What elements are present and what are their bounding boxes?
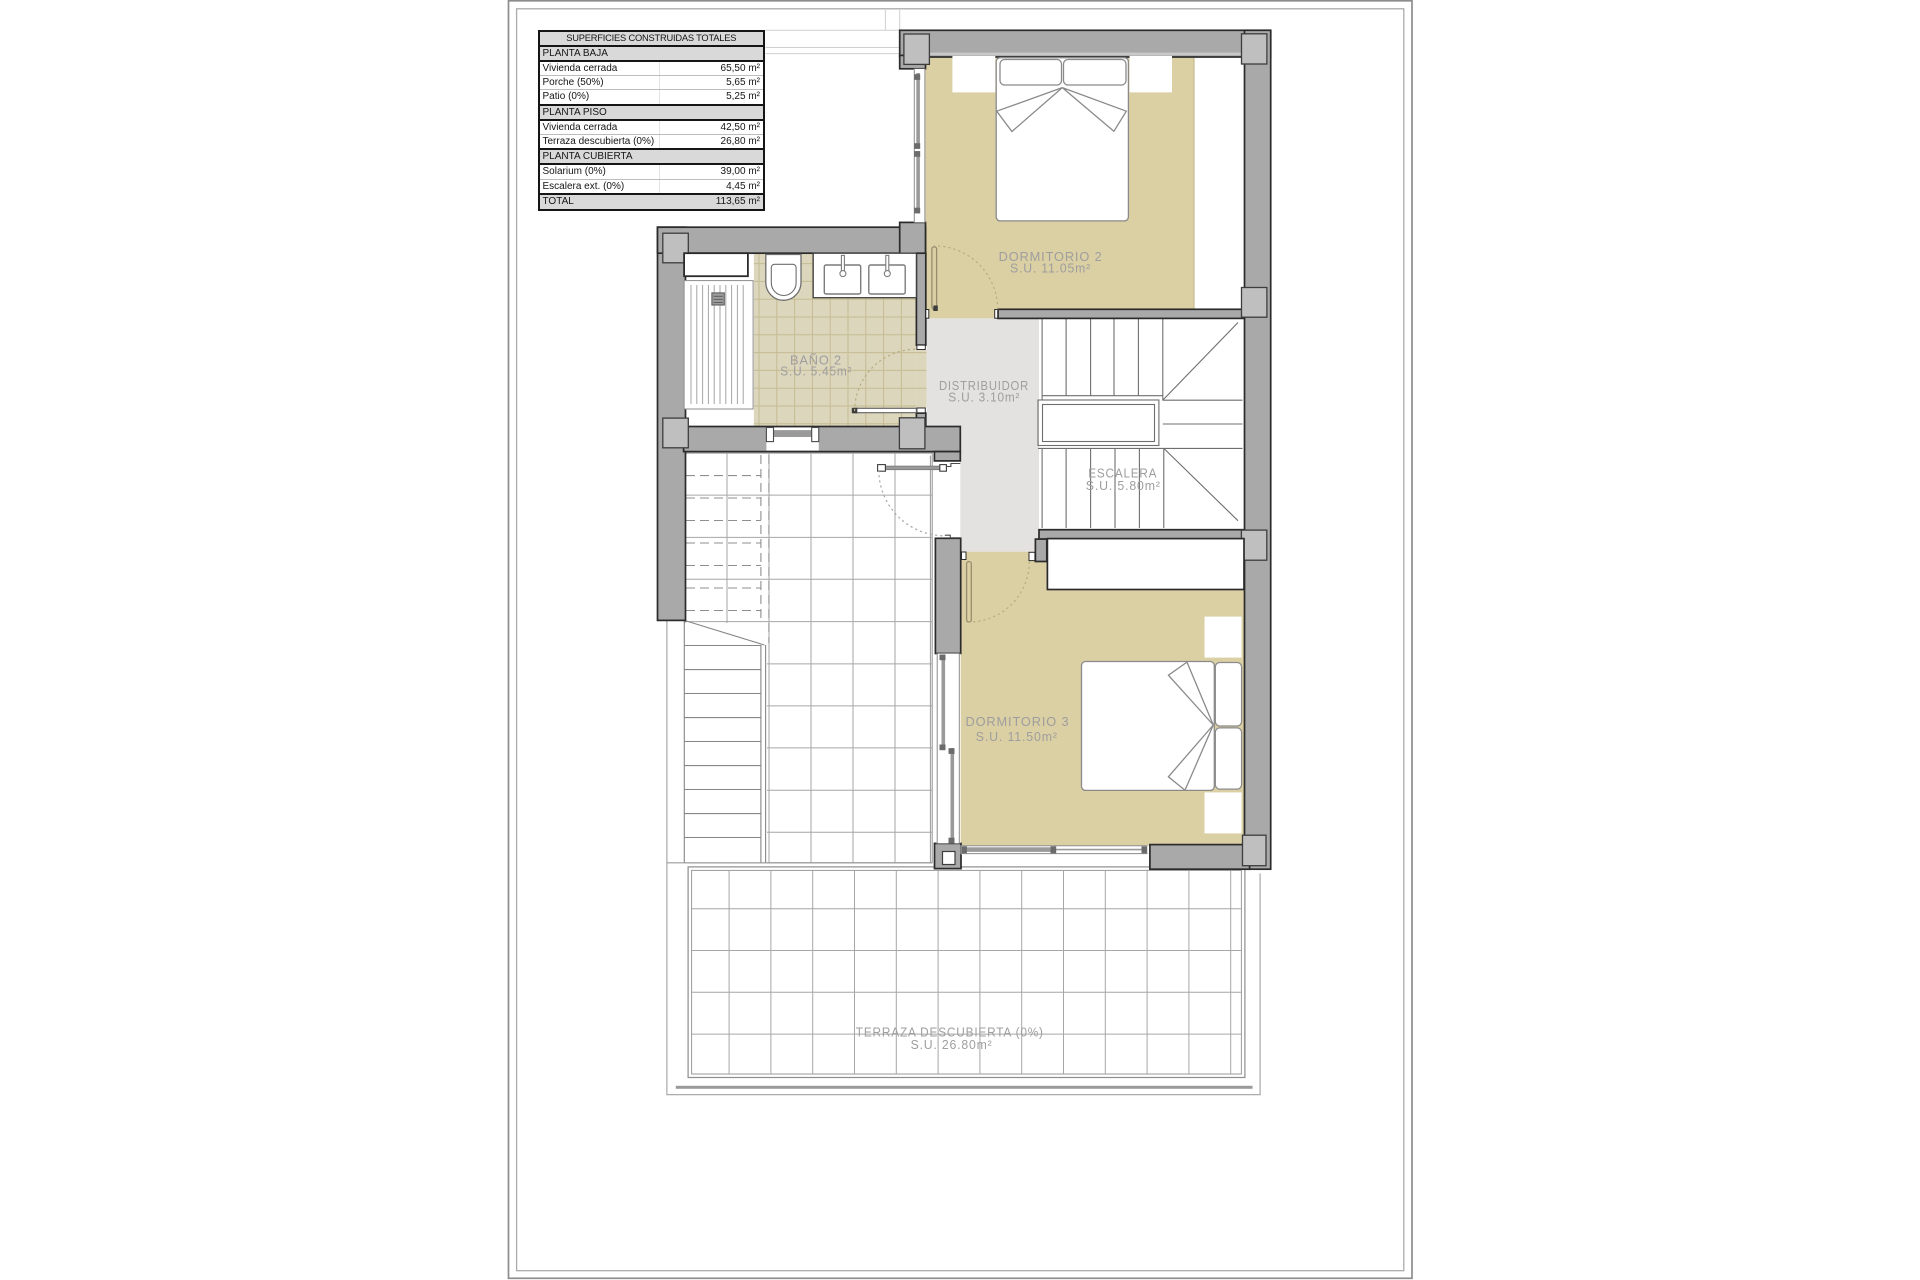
svg-text:S.U. 11.50m²: S.U. 11.50m²: [976, 729, 1058, 744]
svg-text:S.U. 5.45m²: S.U. 5.45m²: [780, 364, 852, 379]
svg-text:S.U. 11.05m²: S.U. 11.05m²: [1010, 261, 1091, 276]
svg-text:S.U. 26.80m²: S.U. 26.80m²: [911, 1037, 993, 1052]
svg-text:DORMITORIO 3: DORMITORIO 3: [966, 714, 1070, 729]
svg-text:S.U. 5.80m²: S.U. 5.80m²: [1086, 478, 1161, 493]
svg-text:S.U. 3.10m²: S.U. 3.10m²: [948, 390, 1020, 405]
